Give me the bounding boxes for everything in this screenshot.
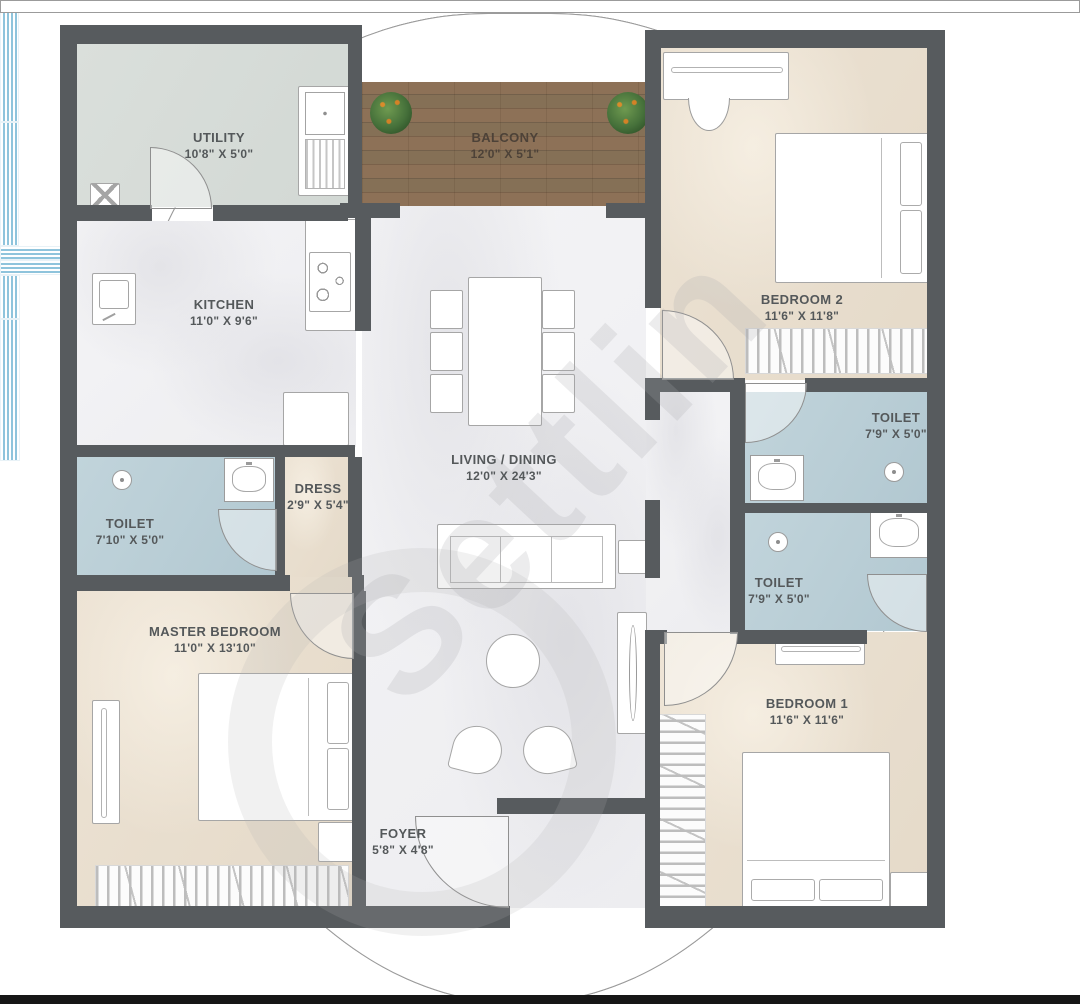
wall bbox=[737, 630, 867, 644]
wall bbox=[645, 45, 661, 210]
window bbox=[0, 275, 20, 319]
rug bbox=[745, 328, 929, 374]
page-bottom-border bbox=[0, 995, 1080, 1004]
master-bedroom-label: MASTER BEDROOM11'0" X 13'10" bbox=[149, 624, 281, 656]
wall bbox=[352, 575, 364, 591]
hob-icon bbox=[309, 252, 351, 312]
wall bbox=[60, 205, 152, 221]
toilet-master-label: TOILET7'10" X 5'0" bbox=[96, 516, 165, 548]
shower-icon bbox=[884, 462, 904, 482]
wall bbox=[60, 25, 362, 44]
wall bbox=[60, 575, 290, 591]
washbasin-icon bbox=[870, 510, 928, 558]
wall bbox=[213, 205, 348, 221]
window bbox=[0, 0, 19, 122]
shaft-icon bbox=[90, 183, 120, 207]
wall bbox=[348, 457, 362, 577]
toilet-common-label: TOILET7'9" X 5'0" bbox=[865, 410, 927, 442]
utility-label: UTILITY10'8" X 5'0" bbox=[185, 130, 254, 162]
dining-chair bbox=[430, 332, 463, 371]
shower-icon bbox=[768, 532, 788, 552]
washbasin-icon bbox=[750, 455, 804, 501]
utility-sink-icon bbox=[298, 86, 352, 196]
wall bbox=[645, 500, 660, 578]
fridge-space bbox=[283, 392, 349, 446]
side-table bbox=[890, 872, 932, 910]
wc-icon bbox=[0, 563, 34, 615]
wall bbox=[60, 445, 355, 457]
bed bbox=[742, 752, 890, 908]
wall bbox=[355, 207, 371, 331]
tv-unit bbox=[617, 612, 647, 734]
living-dining-label: LIVING / DINING12'0" X 24'3" bbox=[451, 452, 557, 484]
dining-table bbox=[468, 277, 542, 426]
washbasin-icon bbox=[224, 458, 274, 502]
wardrobe bbox=[92, 700, 120, 824]
plant-icon bbox=[370, 92, 412, 134]
sofa bbox=[437, 524, 616, 589]
wall bbox=[645, 906, 945, 928]
wall bbox=[730, 392, 745, 634]
shower-icon bbox=[112, 470, 132, 490]
wall bbox=[352, 591, 366, 908]
floor-plan: Settlin UTILITY10'8" X 5'0" BALCONY12'0"… bbox=[0, 0, 1080, 1004]
side-table bbox=[618, 540, 648, 574]
wall bbox=[60, 906, 365, 928]
rug bbox=[656, 714, 706, 910]
wall bbox=[645, 378, 660, 420]
bedroom1-label: BEDROOM 111'6" X 11'6" bbox=[766, 696, 848, 728]
wall bbox=[645, 30, 927, 48]
wall bbox=[606, 203, 648, 218]
wall bbox=[645, 378, 745, 392]
dining-chair bbox=[430, 290, 463, 329]
wall bbox=[348, 25, 362, 207]
wall bbox=[350, 906, 510, 928]
wall bbox=[805, 378, 927, 392]
rug bbox=[95, 865, 349, 909]
wall bbox=[645, 210, 661, 308]
bed bbox=[198, 673, 356, 821]
foyer-label: FOYER5'8" X 4'8" bbox=[372, 826, 434, 858]
kitchen-sink-icon bbox=[92, 273, 136, 325]
window bbox=[0, 319, 20, 461]
side-table bbox=[318, 822, 356, 862]
balcony-label: BALCONY12'0" X 5'1" bbox=[471, 130, 540, 162]
wall bbox=[645, 632, 660, 908]
wc-icon bbox=[0, 511, 36, 563]
plant-icon bbox=[607, 92, 649, 134]
toilet-bedroom1-label: TOILET7'9" X 5'0" bbox=[748, 575, 810, 607]
bed bbox=[775, 133, 929, 283]
dining-chair bbox=[430, 374, 463, 413]
dining-chair bbox=[542, 290, 575, 329]
wardrobe bbox=[663, 52, 789, 100]
window bbox=[0, 122, 19, 246]
wc-icon bbox=[0, 461, 34, 511]
kitchen-label: KITCHEN11'0" X 9'6" bbox=[190, 297, 258, 329]
dress-label: DRESS2'9" X 5'4" bbox=[287, 481, 349, 513]
bedroom2-label: BEDROOM 211'6" X 11'8" bbox=[761, 292, 843, 324]
wall bbox=[60, 25, 77, 928]
dining-chair bbox=[542, 374, 575, 413]
dining-chair bbox=[542, 332, 575, 371]
wall bbox=[745, 503, 927, 513]
coffee-table bbox=[486, 634, 540, 688]
wall bbox=[927, 30, 945, 928]
wall bbox=[497, 798, 647, 814]
room-dress bbox=[283, 457, 350, 577]
